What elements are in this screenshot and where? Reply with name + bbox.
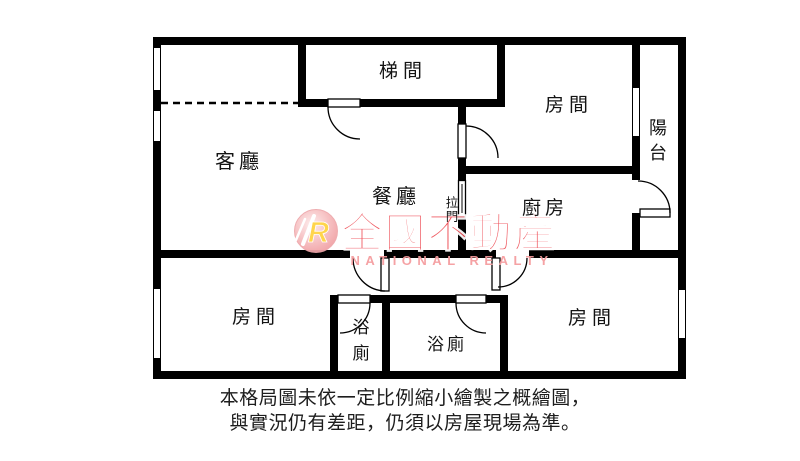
label-kitchen: 廚房 bbox=[522, 196, 568, 219]
window-bedroom-ne-balcony bbox=[633, 88, 640, 137]
watermark: R 全國不動產 NATIONAL REALTY bbox=[295, 210, 557, 269]
label-bath-main: 浴廁 bbox=[427, 334, 467, 354]
caption: 本格局圖未依一定比例縮小繪製之概繪圖， 與實況仍有差距，仍須以房屋現場為準。 bbox=[220, 387, 591, 434]
label-bedroom-sw: 房間 bbox=[232, 306, 280, 328]
label-stairwell: 梯間 bbox=[379, 60, 427, 82]
door-leaf-bedroom-ne bbox=[458, 124, 466, 158]
door-leaf-bath-small bbox=[338, 295, 370, 303]
label-bath-small-char-2: 廁 bbox=[353, 343, 370, 363]
floor-plan-canvas: R 全國不動產 NATIONAL REALTY 客廳 餐廳 梯間 房間 廚房 陽… bbox=[0, 0, 800, 461]
caption-line-1: 本格局圖未依一定比例縮小繪製之概繪圖， bbox=[220, 387, 591, 409]
watermark-logo-letter: R bbox=[308, 217, 329, 249]
window-living-left-upper bbox=[154, 48, 161, 91]
wall-outer-top bbox=[153, 37, 686, 45]
caption-line-2: 與實況仍有差距，仍須以房屋現場為準。 bbox=[229, 412, 580, 434]
wall-bedroom-ne-west-a bbox=[458, 99, 466, 124]
floor-plan-page: R 全國不動產 NATIONAL REALTY 客廳 餐廳 梯間 房間 廚房 陽… bbox=[0, 0, 800, 461]
window-bedroom-sw-left bbox=[154, 289, 161, 359]
door-arc-bedroom-ne bbox=[466, 126, 498, 158]
label-living-room: 客廳 bbox=[215, 150, 263, 173]
wall-stairwell-left bbox=[298, 37, 306, 107]
label-sliding-door-char-2: 門 bbox=[446, 210, 459, 224]
wall-bedroom-ne-west-b bbox=[458, 158, 466, 166]
wall-outer-bottom bbox=[153, 371, 686, 379]
wall-bath-small-west bbox=[330, 295, 338, 371]
door-leaf-balcony bbox=[640, 209, 670, 217]
window-bedroom-se-right bbox=[679, 290, 686, 339]
door-arc-stairwell bbox=[328, 107, 360, 139]
label-bedroom-se: 房間 bbox=[568, 307, 616, 329]
label-balcony-char-1: 陽 bbox=[649, 118, 667, 138]
door-leaf-stairwell bbox=[328, 99, 360, 107]
wall-stairwell-right bbox=[497, 37, 505, 107]
wall-bath-top-a bbox=[370, 295, 456, 303]
label-bath-small-char-1: 浴 bbox=[353, 318, 370, 337]
label-bedroom-ne: 房間 bbox=[545, 94, 593, 116]
window-living-left-lower bbox=[154, 111, 161, 142]
wall-bedroom-kitchen-divider bbox=[458, 166, 640, 174]
wall-stairwell-bottom-a bbox=[298, 99, 328, 107]
wall-bedroom-se-west bbox=[500, 295, 508, 371]
door-arc-bath-main bbox=[456, 303, 486, 333]
label-balcony-char-2: 台 bbox=[649, 143, 667, 163]
wall-balcony-west-c bbox=[632, 213, 640, 250]
door-arc-balcony bbox=[638, 181, 670, 213]
wall-bath-top-b bbox=[486, 295, 508, 303]
wall-kitchen-west-a bbox=[458, 174, 466, 180]
label-dining-room: 餐廳 bbox=[372, 185, 420, 208]
wall-stairwell-bottom-b bbox=[360, 99, 505, 107]
door-leaf-bath-main bbox=[456, 295, 486, 303]
label-sliding-door-char-1: 拉 bbox=[446, 195, 459, 210]
wall-bath-divider bbox=[382, 295, 390, 371]
wall-balcony-west-b bbox=[632, 137, 640, 180]
wall-balcony-west-a bbox=[632, 45, 640, 87]
watermark-subtitle-text: NATIONAL REALTY bbox=[350, 253, 553, 268]
